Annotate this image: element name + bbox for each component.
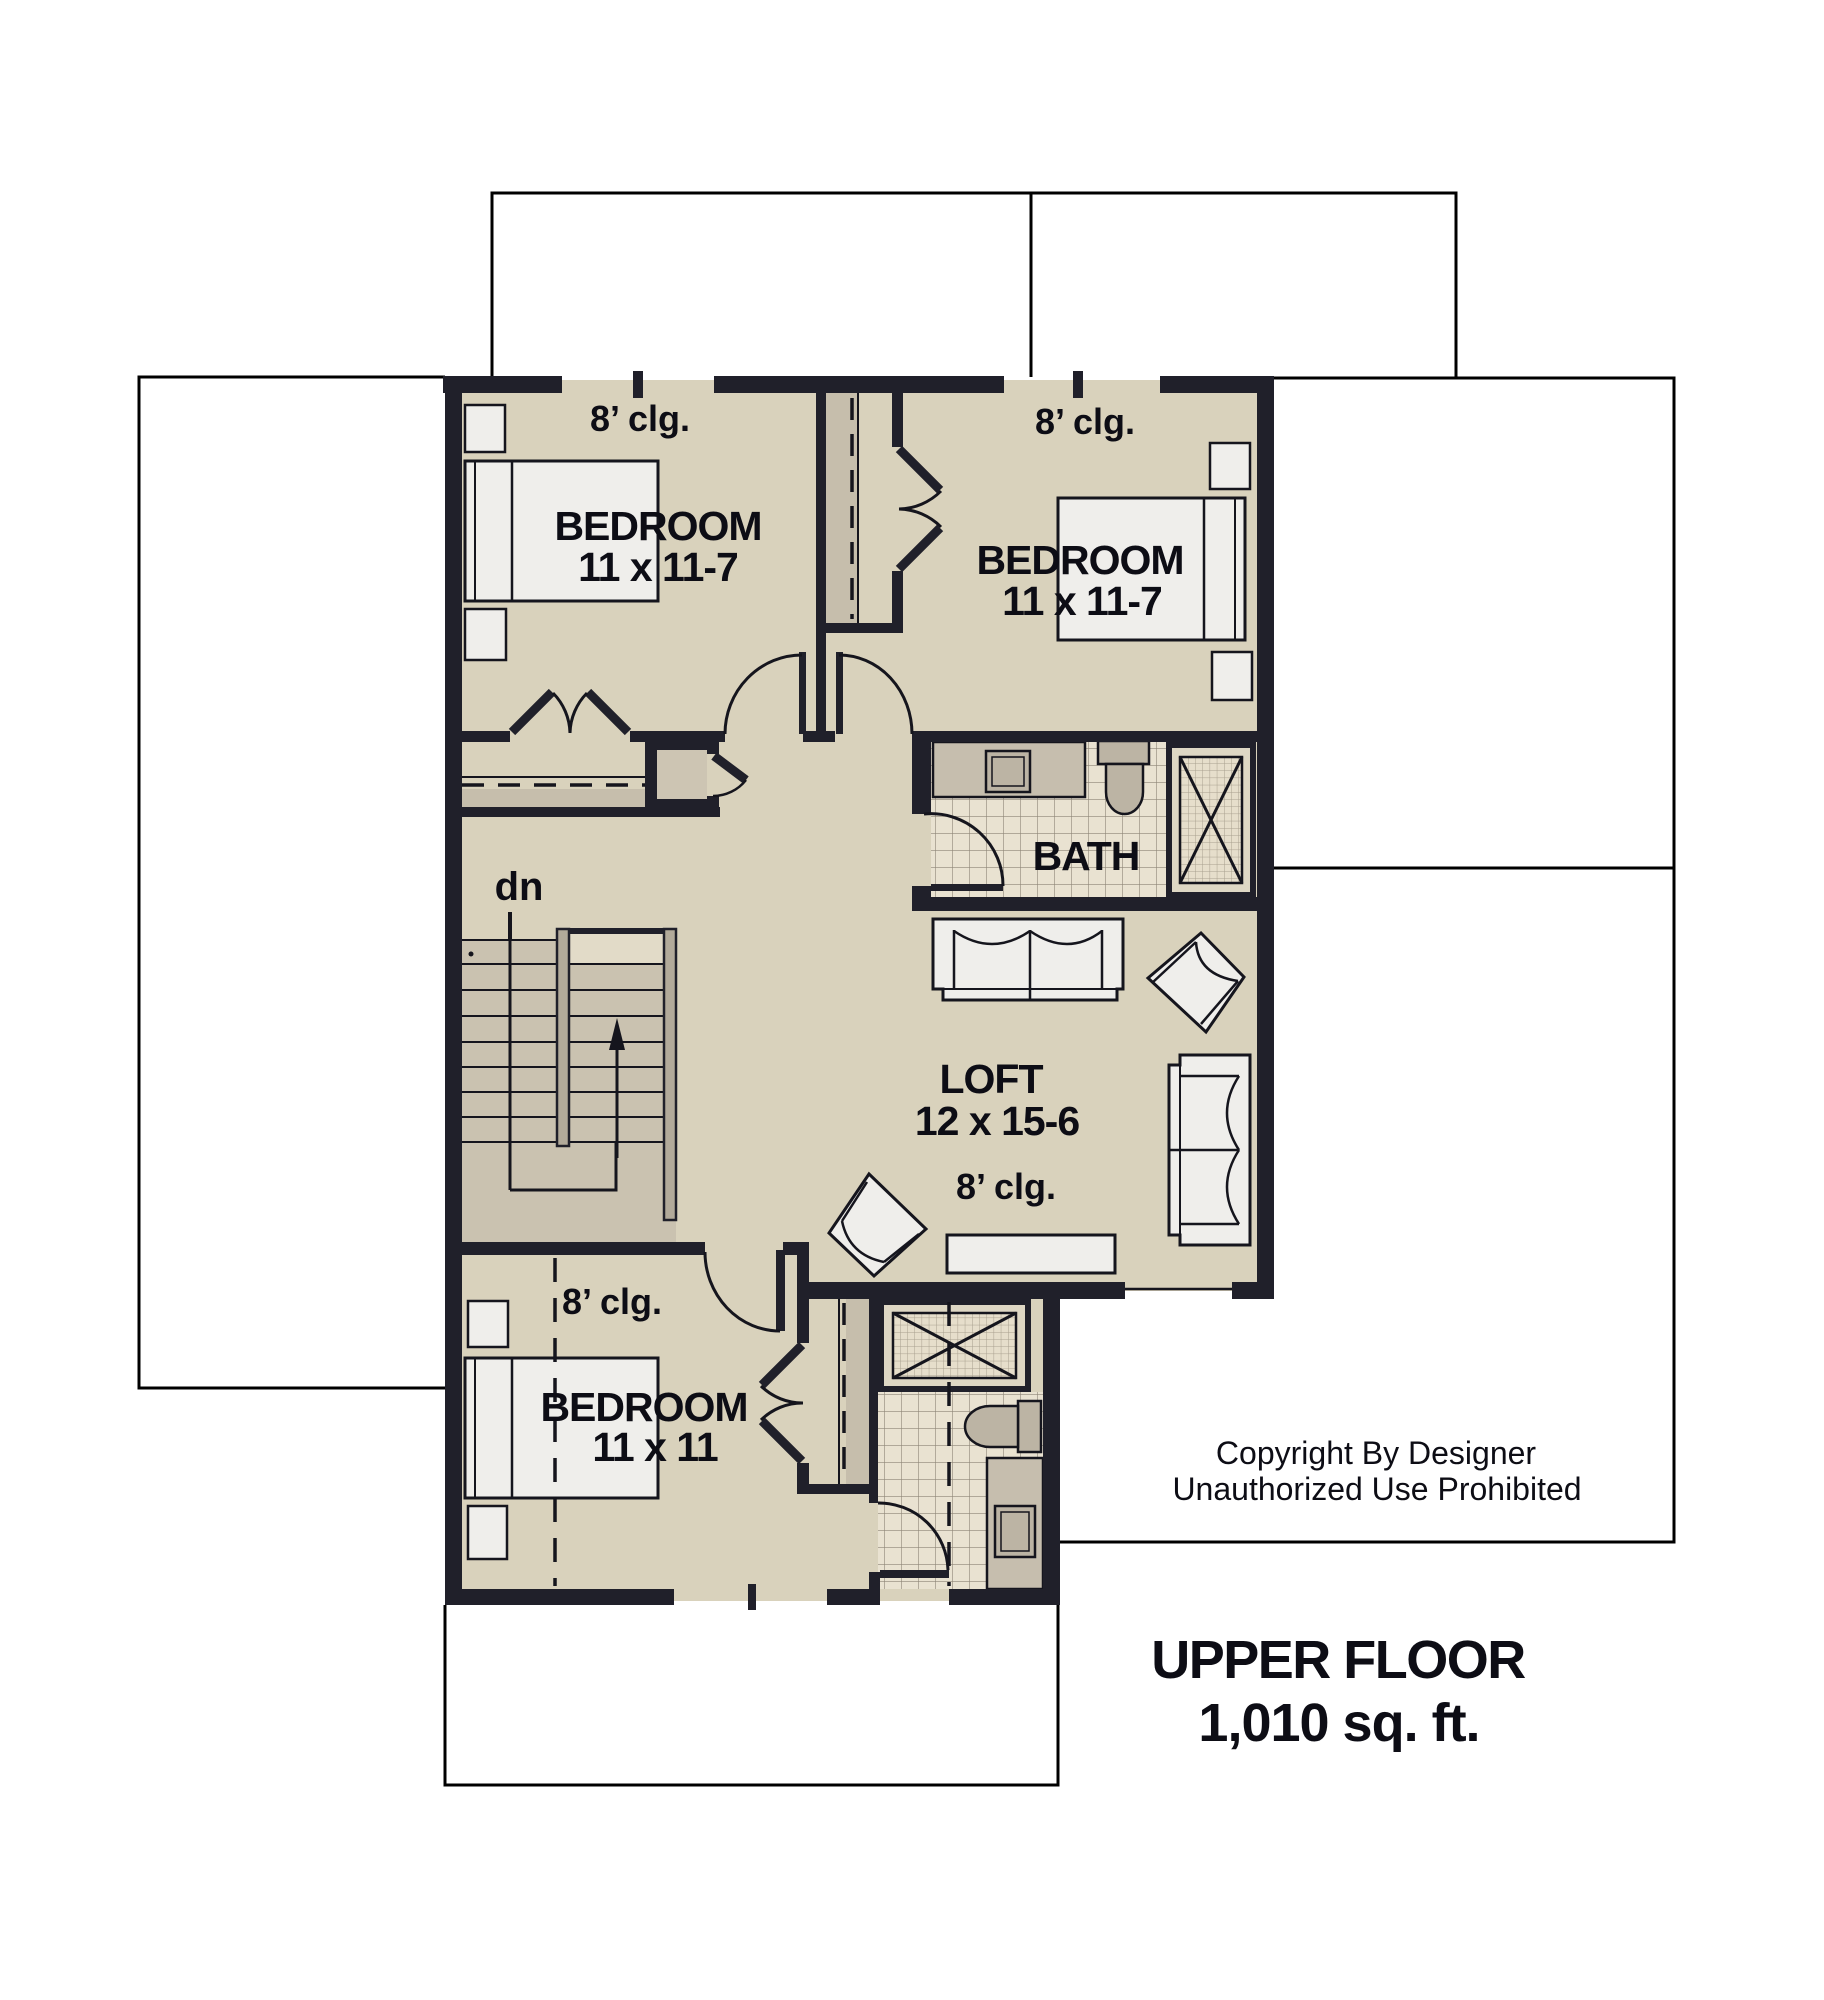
svg-text:11 x 11-7: 11 x 11-7 xyxy=(578,544,738,590)
svg-text:BEDROOM: BEDROOM xyxy=(554,503,761,549)
svg-text:BEDROOM: BEDROOM xyxy=(976,537,1183,583)
svg-text:8’ clg.: 8’ clg. xyxy=(590,398,690,439)
svg-text:Copyright By Designer: Copyright By Designer xyxy=(1216,1435,1536,1471)
svg-text:LOFT: LOFT xyxy=(939,1056,1043,1102)
svg-text:12 x 15-6: 12 x 15-6 xyxy=(915,1098,1079,1144)
svg-text:UPPER FLOOR: UPPER FLOOR xyxy=(1151,1630,1525,1690)
svg-text:11 x 11: 11 x 11 xyxy=(592,1424,717,1470)
svg-text:8’ clg.: 8’ clg. xyxy=(1035,401,1135,442)
svg-text:11 x 11-7: 11 x 11-7 xyxy=(1002,578,1162,624)
svg-text:8’ clg.: 8’ clg. xyxy=(562,1281,662,1322)
svg-text:Unauthorized Use Prohibited: Unauthorized Use Prohibited xyxy=(1172,1471,1581,1507)
svg-text:BATH: BATH xyxy=(1033,833,1140,879)
svg-text:dn: dn xyxy=(495,865,544,909)
svg-text:8’ clg.: 8’ clg. xyxy=(956,1166,1056,1207)
svg-text:1,010 sq. ft.: 1,010 sq. ft. xyxy=(1198,1693,1479,1753)
